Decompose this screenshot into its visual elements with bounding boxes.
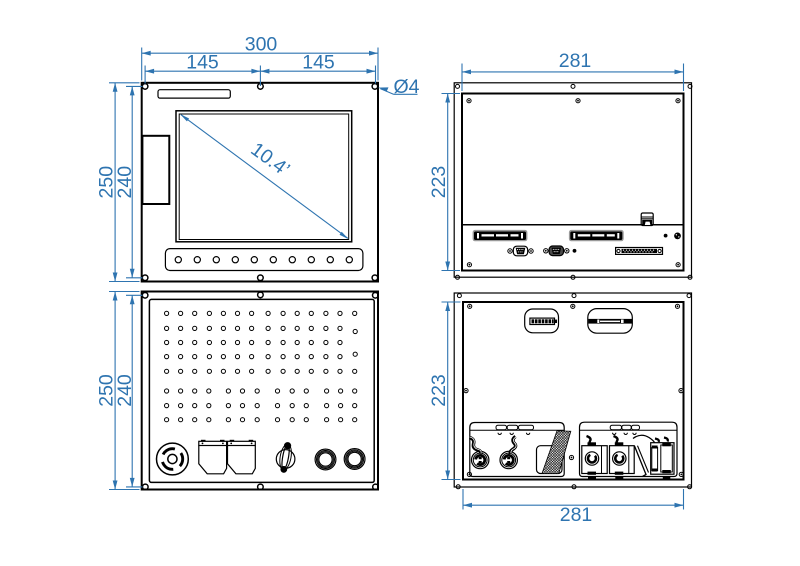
svg-text:223: 223 xyxy=(428,166,450,199)
svg-text:281: 281 xyxy=(560,504,593,526)
svg-text:281: 281 xyxy=(559,50,592,72)
svg-text:240: 240 xyxy=(114,166,136,199)
svg-text:145: 145 xyxy=(302,52,335,74)
svg-text:223: 223 xyxy=(428,374,450,407)
svg-text:240: 240 xyxy=(114,374,136,407)
svg-text:300: 300 xyxy=(245,34,278,56)
svg-text:145: 145 xyxy=(186,52,219,74)
svg-text:Ø4: Ø4 xyxy=(394,76,420,98)
svg-text:10.4’: 10.4’ xyxy=(246,138,293,181)
